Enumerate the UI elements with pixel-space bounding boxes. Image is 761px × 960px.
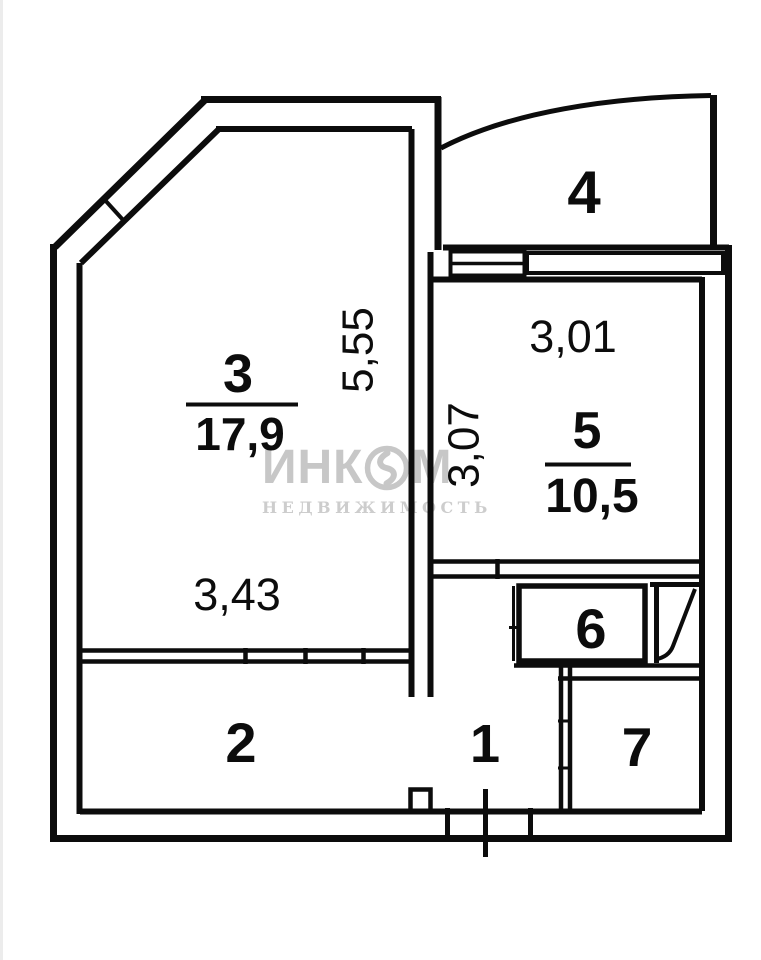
room1-number-label: 1 [470, 714, 500, 774]
balcony-wide-window [527, 253, 723, 273]
room3-number-label: 3 [223, 344, 253, 404]
room7-number-label: 7 [622, 716, 653, 778]
floorplan-image: ИНК М НЕДВИЖИМОСТЬ [0, 0, 761, 960]
room5-height-dim: 3,07 [440, 402, 489, 488]
diagonal-wall-tick [104, 199, 124, 221]
wall-hall-room7 [561, 666, 570, 811]
room6-room7-band [514, 666, 702, 679]
room3-area-label: 17,9 [195, 408, 285, 460]
room5-width-dim: 3,01 [529, 311, 617, 362]
room6-number-label: 6 [575, 597, 606, 660]
room2-number-label: 2 [225, 711, 256, 774]
room5-area-label: 10,5 [545, 470, 638, 523]
room4-number-label: 4 [567, 159, 601, 226]
door-leaf [655, 589, 695, 660]
room3-width-dim: 3,43 [193, 569, 281, 620]
floorplan-svg: 3 17,9 4 5 10,5 6 7 1 2 3,43 5,55 3,01 3… [0, 0, 761, 960]
room1-room2-pier [411, 790, 431, 812]
partition-room3-room2 [81, 648, 411, 664]
room3-height-dim: 5,55 [334, 307, 383, 393]
room5-number-label: 5 [573, 402, 602, 460]
room5-bottom-wall [430, 559, 702, 579]
balcony-curved-wall [441, 96, 711, 149]
